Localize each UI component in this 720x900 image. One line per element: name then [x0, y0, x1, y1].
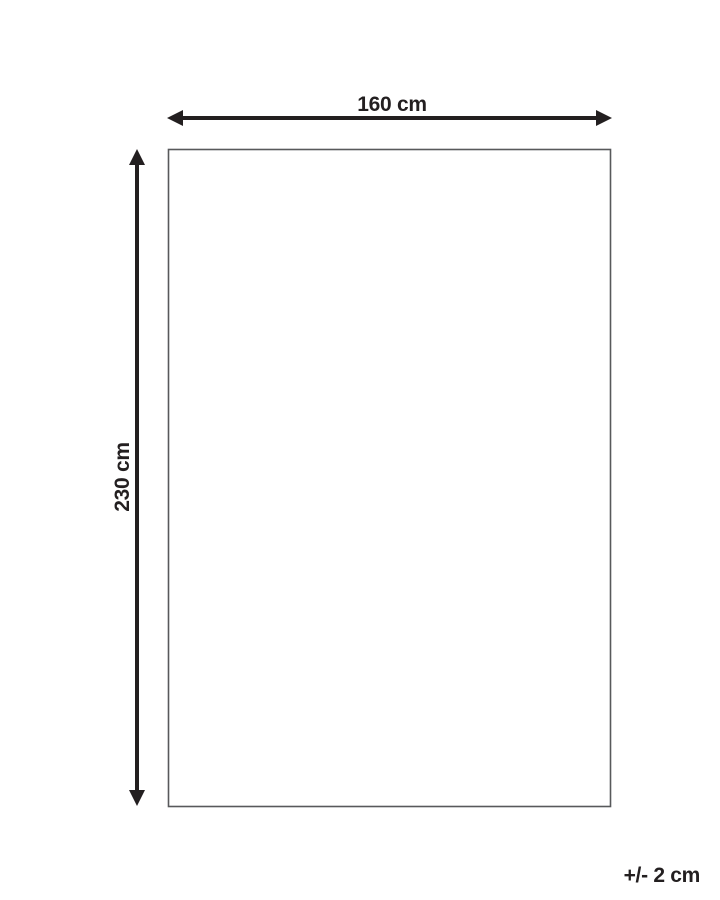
height-arrow-bottom-head-icon — [129, 790, 145, 806]
tolerance-label: +/- 2 cm — [624, 864, 700, 887]
width-arrow-right-head-icon — [596, 110, 612, 126]
height-dimension-label: 230 cm — [111, 442, 134, 511]
width-dimension-label: 160 cm — [357, 93, 426, 116]
dimension-diagram: 160 cm 230 cm +/- 2 cm — [0, 0, 720, 900]
width-arrow-left-head-icon — [167, 110, 183, 126]
product-outline-rect — [169, 150, 611, 807]
height-arrow-top-head-icon — [129, 149, 145, 165]
dimension-diagram-svg: 160 cm 230 cm +/- 2 cm — [0, 0, 720, 900]
